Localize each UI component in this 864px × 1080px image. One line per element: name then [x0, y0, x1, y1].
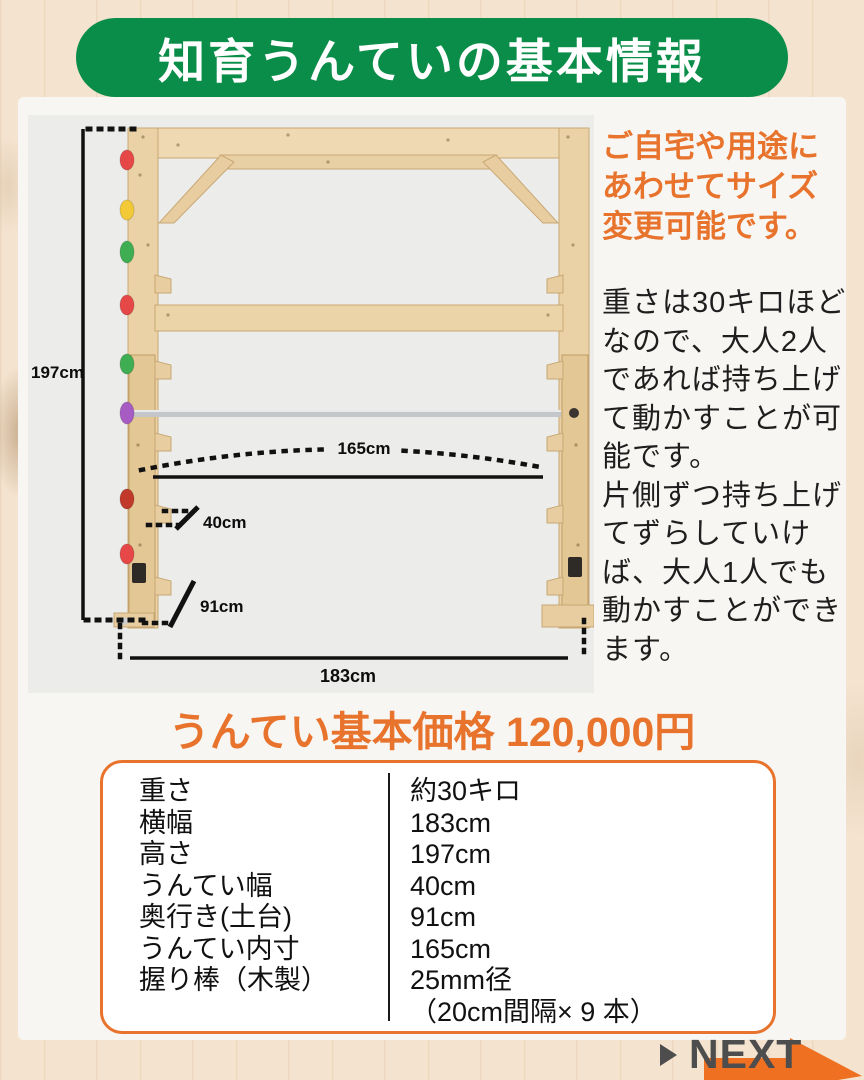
- bar-knob: [569, 408, 579, 418]
- dim-label-inner-span: 165cm: [338, 439, 391, 458]
- next-button[interactable]: NEXT: [634, 1032, 864, 1080]
- photo-background: [28, 115, 594, 693]
- body-line: 片側ずつ持ち上げ: [602, 477, 842, 516]
- spec-value: 197cm: [388, 839, 491, 871]
- climbing-hold: [120, 354, 134, 374]
- spec-label: 奥行き(土台): [103, 902, 388, 934]
- headline-line: あわせてサイズ: [602, 167, 842, 207]
- body-line: であれば持ち上げ: [602, 361, 842, 400]
- table-row: 横幅 183cm: [103, 808, 773, 840]
- inner-beam: [220, 155, 497, 169]
- climbing-holds: [120, 150, 134, 564]
- body-line: ば、大人1人でも: [602, 554, 842, 593]
- body-line: なので、大人2人: [602, 323, 842, 362]
- spec-label: 横幅: [103, 808, 388, 840]
- spec-table: 重さ 約30キロ 横幅 183cm 高さ 197cm うんてい幅 40cm 奥行…: [100, 760, 776, 1034]
- content-card: 197cm 165cm 40cm 91cm 183cm ご自宅や用途に あわせて…: [18, 97, 846, 1040]
- monkey-bars-diagram: 197cm 165cm 40cm 91cm 183cm: [28, 115, 594, 693]
- title-banner: 知育うんていの基本情報: [76, 18, 788, 97]
- body-line: ます。: [602, 631, 842, 670]
- metal-bar-highlight: [129, 410, 561, 412]
- intro-text-column: ご自宅や用途に あわせてサイズ 変更可能です。 重さは30キロほど なので、大人…: [602, 127, 842, 669]
- product-photo: 197cm 165cm 40cm 91cm 183cm: [28, 115, 594, 693]
- spec-value: 25mm径 （20cm間隔× 9 本）: [388, 965, 657, 1028]
- page-title: 知育うんていの基本情報: [158, 23, 706, 92]
- dim-label-rung-width: 40cm: [203, 513, 246, 532]
- intro-headline: ご自宅や用途に あわせてサイズ 変更可能です。: [602, 127, 842, 247]
- dim-label-base-depth: 91cm: [200, 597, 243, 616]
- table-row: 奥行き(土台) 91cm: [103, 902, 773, 934]
- climbing-hold: [120, 402, 134, 424]
- middle-beam: [155, 305, 563, 331]
- headline-line: 変更可能です。: [602, 207, 842, 247]
- table-row: 重さ 約30キロ: [103, 776, 773, 808]
- dim-label-total-width: 183cm: [320, 666, 376, 686]
- body-line: て動かすことが可: [602, 400, 842, 439]
- spec-label: 握り棒（木製）: [103, 965, 388, 1028]
- headline-line: ご自宅や用途に: [602, 127, 842, 167]
- body-line: 能です。: [602, 438, 842, 477]
- spec-value: 約30キロ: [388, 776, 521, 808]
- climbing-hold: [120, 200, 134, 220]
- table-row: うんてい内寸 165cm: [103, 934, 773, 966]
- spec-label: うんてい幅: [103, 871, 388, 903]
- top-beam: [128, 128, 588, 158]
- dim-label-height: 197cm: [31, 363, 84, 382]
- spec-value-line: 25mm径: [410, 965, 657, 997]
- spec-value: 91cm: [388, 902, 476, 934]
- left-hinge: [132, 563, 146, 583]
- spec-label: うんてい内寸: [103, 934, 388, 966]
- spec-label: 高さ: [103, 839, 388, 871]
- climbing-hold: [120, 295, 134, 315]
- body-line: 動かすことができ: [602, 592, 842, 631]
- climbing-hold: [120, 150, 134, 170]
- price-heading: うんてい基本価格 120,000円: [18, 698, 846, 758]
- climbing-hold: [120, 489, 134, 509]
- right-lower-post: [562, 355, 588, 623]
- play-icon: [660, 1044, 677, 1066]
- climbing-hold: [120, 241, 134, 263]
- spec-value-line: （20cm間隔× 9 本）: [410, 997, 657, 1029]
- table-row: うんてい幅 40cm: [103, 871, 773, 903]
- table-row: 握り棒（木製） 25mm径 （20cm間隔× 9 本）: [103, 965, 773, 1028]
- intro-body: 重さは30キロほど なので、大人2人 であれば持ち上げ て動かすことが可 能です…: [602, 284, 842, 669]
- body-line: 重さは30キロほど: [602, 284, 842, 323]
- spec-table-divider: [388, 773, 390, 1021]
- body-line: てずらしていけ: [602, 515, 842, 554]
- right-hinge: [568, 557, 582, 577]
- spec-label: 重さ: [103, 776, 388, 808]
- spec-value: 183cm: [388, 808, 491, 840]
- next-label: NEXT: [660, 1034, 802, 1075]
- climbing-hold: [120, 544, 134, 564]
- next-text: NEXT: [689, 1034, 802, 1075]
- spec-value: 165cm: [388, 934, 491, 966]
- table-row: 高さ 197cm: [103, 839, 773, 871]
- spec-value: 40cm: [388, 871, 476, 903]
